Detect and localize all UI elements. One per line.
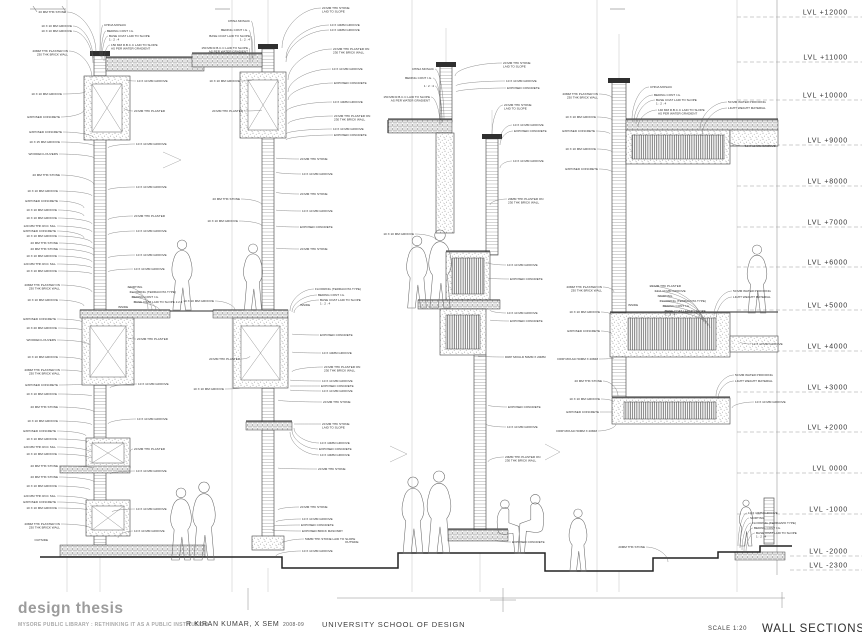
annotation-label: 10 X 10 MM GROOVE <box>322 379 353 383</box>
leader-line <box>276 210 301 211</box>
leader-line <box>58 256 92 262</box>
project-subtitle: MYSORE PUBLIC LIBRARY : RETHINKING IT AS… <box>18 622 208 628</box>
annotation-label: WOODEN LOUVERS <box>27 338 56 342</box>
annotation-label: 120 MM THK RCC SILL <box>24 224 57 228</box>
level-label: LVL -1000 <box>809 507 848 514</box>
annotation-label: EXPOSED CONCRETE <box>23 317 56 321</box>
wall-section-2 <box>192 44 292 550</box>
wall-section-4 <box>608 78 785 560</box>
leader-line <box>59 154 94 158</box>
annotation-label: 20MM THK PLASTER ON230 THK BRICK WALL <box>567 285 603 292</box>
institution-name: UNIVERSITY SCHOOL OF DESIGN <box>322 620 465 629</box>
annotation-label: 10 X 10 MM GROOVE <box>137 417 168 421</box>
leader-line <box>288 49 332 80</box>
annotation-label: 10 X 10 MM GROOVE <box>26 392 57 396</box>
annotation-label: EXPOSED CONCRETE <box>510 319 543 323</box>
annotation-label: EXPOSED CONCRETE <box>510 277 543 281</box>
annotation-label: 10 X 10 MM GROOVE <box>26 234 57 238</box>
annotation-label: 10 X 10 MM GROOVE <box>26 208 57 212</box>
leader-line <box>59 384 82 385</box>
annotation-label: 20 MM THK STONE <box>31 241 58 245</box>
annotation-label: 10 X 10 MM GROOVE <box>136 142 167 146</box>
annotation-label: 50 MM WATER PROOFING <box>735 373 774 377</box>
level-label: LVL +12000 <box>803 10 848 17</box>
annotation-label: EXPOSED CONCRETE <box>334 81 367 85</box>
leader-line <box>488 457 504 462</box>
annotation-label: 10 X 10 MM GROOVE <box>565 115 596 119</box>
annotation-label: OUTSIDE <box>34 538 48 542</box>
annotation-label: BEDING CONT I.G. <box>654 93 681 97</box>
annotation-label: 20 MM THK STONE <box>213 197 240 201</box>
level-label: LVL +8000 <box>808 179 848 186</box>
annotation-label: LIGHT WEIGHT MATERIAL <box>733 295 771 299</box>
leader-line <box>292 430 318 449</box>
leader-line <box>290 432 319 455</box>
annotation-label: 20 MM THK STONELAID TO SLOPE <box>322 6 349 13</box>
annotation-label: DRIP MOULD 50MM X 20MM <box>556 429 597 433</box>
human-figure-standing <box>747 255 766 313</box>
leader-line <box>288 116 333 124</box>
leader-line <box>57 319 82 322</box>
leader-line <box>288 69 331 92</box>
annotation-label: 10 X 10 MM GROOVE <box>27 189 58 193</box>
annotation-label: 50 MM WATER PROOFING <box>733 289 772 293</box>
annotation-label: 150 MM R.B.C.C LAID TO SLOPEAS PER WATER… <box>111 43 158 50</box>
annotation-label: LIGHT WEIGHT MATERIAL <box>728 106 766 110</box>
leader-line <box>274 525 300 526</box>
annotation-label: 10 X 10 MM GROOVE <box>513 159 544 163</box>
annotation-label: 10 X 10 MM GROOVE <box>136 507 167 511</box>
annotation-label: 10 X 10MM GROOVE <box>333 100 363 104</box>
annotation-label: BASE COAT LAID TO SLOPE1 : 2 : 4 <box>320 298 361 305</box>
leader-line <box>292 367 323 372</box>
annotation-label: 20MM THK PLASTER ON230 THK BRICK WALL <box>33 49 69 56</box>
leader-line <box>488 405 507 407</box>
human-figure-head <box>176 488 186 498</box>
annotation-label: 10 X 10 MM GROOVE <box>136 253 167 257</box>
annotation-label: EXPOSED CONCRETE <box>25 199 58 203</box>
leader-line <box>58 271 92 274</box>
leader-line <box>599 169 612 172</box>
annotation-label: 20 MM THK PLASTER <box>209 357 241 361</box>
leader-line <box>58 218 92 224</box>
annotation-label: 10 X 10 MM GROOVE <box>31 92 62 96</box>
annotation-label: 120 MM THK RCC SILL <box>24 445 57 449</box>
annotation-label: 10 X 10 MM GROOVE <box>26 254 57 258</box>
leader-line <box>278 400 322 402</box>
leader-line <box>57 502 86 505</box>
leader-line <box>276 226 299 227</box>
annotation-label: DRIP MOULD 50MM X 20MM <box>557 357 598 361</box>
level-label: LVL 0000 <box>812 466 848 473</box>
leader-line <box>290 390 321 391</box>
leader-line <box>59 300 84 306</box>
annotation-label: 50 MM WATER PROOFING <box>728 100 767 104</box>
annotation-label: 10 X 10 MM GROOVE <box>332 67 363 71</box>
annotation-label: 120 MM THK RCC SILL <box>24 494 57 498</box>
annotation-label: 10 X 10 MM GROOVE <box>26 452 57 456</box>
leader-line <box>597 149 612 152</box>
annotation-label: SKIRTING <box>750 516 765 520</box>
annotation-label: 20 MM THK STONE <box>300 505 327 509</box>
leader-line <box>282 8 321 48</box>
annotation-label: 10 X 10 MM GROOVE <box>569 397 600 401</box>
annotation-label: 20MM THK PLASTER ON230 THK BRICK WALL <box>25 368 61 375</box>
annotation-label: 20 MM THK PLASTER <box>134 447 166 451</box>
annotation-label: 10 X 10 MM GROOVE <box>302 209 333 213</box>
leader-line <box>61 370 82 372</box>
annotation-label: 10 X 10 MM GROOVE <box>322 389 353 393</box>
annotation-label: 10 X 10MM GROOVE <box>330 28 360 32</box>
annotation-label: INSIDE <box>300 303 310 307</box>
annotation-label: 10 X 10 MM GROOVE <box>26 269 57 273</box>
annotation-label: 20 MM THK PLASTER ON230 THK BRICK WALL <box>334 114 370 121</box>
leader-line <box>599 94 612 98</box>
annotation-label: BEDING CONT I.G. <box>107 29 134 33</box>
level-label: LVL +5000 <box>808 303 848 310</box>
academic-year: 2008-09 <box>283 622 304 628</box>
leader-line <box>58 508 88 510</box>
leader-line <box>455 63 502 76</box>
leader-line <box>276 551 301 556</box>
annotation-label: 10 X 10 MM GROOVE <box>752 342 783 346</box>
annotation-label: BASE COAT LAID TO SLOPE1 : 2 : 4 <box>656 98 697 105</box>
annotation-label: EXPOSED CONCRETE <box>321 384 354 388</box>
annotation-label: 10 X 10 MM GROOVE <box>745 144 776 148</box>
leader-line <box>598 424 616 431</box>
level-label: LVL -2000 <box>809 549 848 556</box>
leader-line <box>276 248 299 249</box>
leader-line <box>276 172 301 174</box>
leader-line <box>58 486 90 490</box>
annotation-label: EXPOSED CONCRETE <box>334 133 367 137</box>
leader-line <box>59 407 94 412</box>
annotation-label: 20 MM THK PLASTER ON230 THK BRICK WALL <box>324 365 360 372</box>
leader-line <box>61 524 90 528</box>
annotation-label: 20 MM THK STONELAID TO SLOPE <box>504 103 531 110</box>
leader-line <box>718 381 734 399</box>
annotation-label: 10 X 10 MM GROOVE <box>134 529 165 533</box>
annotation-label: 10 X 10 MM GROOVE <box>27 298 58 302</box>
leader-line <box>59 477 94 482</box>
leader-line <box>241 199 262 205</box>
annotation-label: 20 MM THK STONE <box>300 192 327 196</box>
annotation-label: 10 X 10 MM GROOVE <box>183 299 214 303</box>
scale-note: SCALE 1:20 <box>708 626 747 632</box>
annotation-label: 10 X 10 MM GROOVE <box>506 79 537 83</box>
annotation-label: 120 MM THK RCC SILL <box>24 262 57 266</box>
leader-line <box>58 394 92 396</box>
annotation-label: 10 X 10 MM GROOVE <box>207 219 238 223</box>
leader-line <box>59 191 92 196</box>
leader-line <box>108 216 133 220</box>
leader-line <box>61 110 84 117</box>
annotation-label: 20 MM THK PLASTER <box>212 109 244 113</box>
annotation-label: 20 MM THK STONE <box>318 467 345 471</box>
level-label: LVL +9000 <box>808 138 848 145</box>
annotation-label: BEDING CONT I.G. <box>132 295 159 299</box>
human-figure-head <box>433 471 444 482</box>
leader-line <box>597 117 612 120</box>
leader-line <box>59 421 92 425</box>
annotation-label: 20 MM THK STONE <box>33 173 60 177</box>
annotation-label: EXPOSED CONCRETE <box>27 115 60 119</box>
leader-line <box>488 278 509 279</box>
annotation-label: 20 MM THK STONE <box>39 10 66 14</box>
level-label: LVL +6000 <box>808 260 848 267</box>
annotation-label: 10 X 10 MM GROOVE <box>302 549 333 553</box>
leader-line <box>278 507 299 510</box>
leader-line <box>61 142 94 146</box>
human-figure-head <box>408 477 418 487</box>
level-label: LVL +11000 <box>803 55 848 62</box>
leader-line <box>490 310 506 313</box>
leader-line <box>59 249 94 256</box>
annotation-label: 10 X 10 MM GROOVE <box>655 289 686 293</box>
annotation-label: 10 X 10 MM GROOVE <box>755 400 786 404</box>
leader-line <box>57 231 84 238</box>
annotation-label: 20 MM THK STONE <box>31 247 58 251</box>
leader-line <box>61 175 94 185</box>
annotation-label: 20 MM THK STONE <box>300 247 327 251</box>
human-figure-standing <box>407 247 428 308</box>
annotation-label: 20 MM THK STONE <box>31 464 58 468</box>
leader-line <box>456 88 506 92</box>
leader-line <box>486 424 506 427</box>
leader-line <box>276 519 301 522</box>
leader-line <box>596 131 610 134</box>
annotation-label: BASE COAT LAID TO SLOPE1 : 2 : 4 <box>756 531 797 538</box>
annotation-label: 10 X 10 MM GROOVE <box>137 79 168 83</box>
annotation-label: 10 X 10MM GROOVE <box>330 23 360 27</box>
leader-line <box>59 357 82 360</box>
annotation-label: 10 X 10 MM GROOVE <box>302 517 333 521</box>
leader-line <box>286 30 329 62</box>
leader-line <box>130 449 133 452</box>
leader-line <box>286 135 333 140</box>
leader-line <box>490 320 509 321</box>
annotation-label: BASE COAT LAID TO SLOPE1 : 2 : 4 <box>209 34 250 41</box>
annotation-label: BASE COAT LAID TO SLOPE1 : 2 : 4 <box>109 34 150 41</box>
annotation-label: FLOORING (TERRAZZO TYPE) <box>752 521 796 525</box>
wall-section-1 <box>60 51 213 557</box>
annotation-label: WOODEN LOUVERS <box>29 152 58 156</box>
annotation-label: 20MM THK PLASTER ON230 THK BRICK WALL <box>563 92 599 99</box>
annotation-label: 20 MM THK STONE <box>31 475 58 479</box>
leader-line <box>276 158 299 159</box>
annotation-label: 10 X 10MM GROOVE <box>320 441 350 445</box>
leader-line <box>500 131 513 145</box>
annotation-label: OUTSIDE <box>345 540 359 544</box>
annotation-label: 10 X 10 MM GROOVE <box>333 127 364 131</box>
leader-line <box>63 92 85 94</box>
annotation-label: CHINA MOSAIC <box>650 85 673 89</box>
annotation-label: 10 X 10 MM GROOVE <box>41 29 72 33</box>
annotation-label: 10 X 10 MM GROOVE <box>383 232 414 236</box>
annotation-label: CHINA MOSAIC <box>104 23 127 27</box>
leader-line <box>73 31 93 63</box>
annotation-label: BASE COAT LAID TO SLOPE 1:2:4 <box>134 300 183 304</box>
leader-line <box>69 51 92 78</box>
human-figure-standing <box>402 488 424 553</box>
leader-line <box>292 352 321 353</box>
annotation-label: EXPOSED CONCRETE <box>29 130 62 134</box>
drawing-sheet: LVL +12000LVL +11000LVL +10000LVL +9000L… <box>0 0 862 637</box>
leader-line <box>57 496 88 500</box>
annotation-label: 10 X 10 MM GROOVE <box>302 172 333 176</box>
human-figure-head <box>743 500 749 506</box>
human-figure-head <box>574 509 582 517</box>
leader-line <box>58 439 88 442</box>
leader-line <box>108 187 135 190</box>
annotation-label: 10 X 20 MM GROOVE <box>26 326 57 330</box>
level-label: LVL +4000 <box>808 344 848 351</box>
annotation-label: 140 MM R.B.C.C LAID TO SLOPEAS PER WATER… <box>658 108 705 115</box>
human-figure-standing <box>244 254 263 310</box>
annotation-label: 10 X 10MM GROOVE <box>322 351 352 355</box>
annotation-label: 10 X 10 MM GROOVE <box>193 387 224 391</box>
annotation-label: EXPOSED CONCRETE <box>23 500 56 504</box>
leader-line <box>732 402 754 408</box>
annotation-label: 10 X 10 MM GROOVE <box>513 123 544 127</box>
leader-line <box>456 81 505 86</box>
leader-line <box>492 105 503 134</box>
annotation-label: EXPOSED CONCRETE <box>562 129 595 133</box>
annotation-label: 10 X 15 MM GROOVE <box>29 140 60 144</box>
annotation-label: INSIDE <box>628 303 638 307</box>
annotation-label: 10 X 10 MM GROOVE <box>26 216 57 220</box>
annotation-label: 10 X 10 MM GROOVE <box>507 311 538 315</box>
leader-line <box>278 468 317 469</box>
annotations: 20 MM THK STONE10 X 10 MM GROOVE10 X 10 … <box>23 6 796 562</box>
annotation-label: CHINA MOSAIC <box>228 19 251 23</box>
annotation-label: 20 MM THK PLASTER <box>137 337 169 341</box>
annotation-label: 20MM THK PLASTER ON230 THK BRICK WALL <box>25 283 61 290</box>
leader-line <box>286 102 332 112</box>
annotation-label: BEDING CONT I.G. <box>405 76 432 80</box>
leader-line <box>61 285 92 292</box>
annotation-label: 20 MM THK PLASTER ON230 THK BRICK WALL <box>333 47 369 54</box>
annotation-label: 10 X 10 MM GROOVE <box>27 355 58 359</box>
annotation-label: DRIP MOULD 50MM X 20MM <box>505 355 546 359</box>
annotation-label: 20MM THK PLASTER ON230 THK BRICK WALL <box>505 455 541 462</box>
leader-line <box>415 234 436 240</box>
annotation-label: FLOORING (TERRACOTA TYPE) <box>660 299 706 303</box>
level-label: LVL +3000 <box>808 385 848 392</box>
annotation-label: EXPOSED CONCRETE <box>514 129 547 133</box>
annotation-label: FLOORING (TERRACOTA TYPE) <box>315 287 361 291</box>
annotation-label: 20 MM THK PLASTER <box>650 284 682 288</box>
title-block: design thesis MYSORE PUBLIC LIBRARY : RE… <box>18 588 862 635</box>
annotation-label: 20 MM THK STONE <box>323 400 350 404</box>
leader-line <box>108 419 136 424</box>
annotation-label: 150 MM R.B.C.C LAID TO SLOPEAS PER WATER… <box>383 95 430 102</box>
annotation-label: 20MM THK STONE <box>618 545 645 549</box>
annotation-label: 10 X 10 MM GROOVE <box>136 229 167 233</box>
annotation-label: 10 X 10 MM GROOVE <box>569 310 600 314</box>
leader-line <box>108 231 135 235</box>
annotation-label: 10 X 10 MM GROOVE <box>41 24 72 28</box>
annotation-label: EXPOSED CONCRETE <box>566 410 599 414</box>
annotation-label: EXPOSED CONCRETE <box>23 229 56 233</box>
annotation-label: 10 X 10 MM GROOVE <box>27 419 58 423</box>
annotation-label: EXPOSED CONCRETE <box>512 540 545 544</box>
leader-line <box>108 269 133 272</box>
annotation-label: 20MM THK PLASTER ON230 THK BRICK WALL <box>508 197 544 204</box>
leader-line <box>57 264 92 268</box>
human-figure-head <box>177 240 187 250</box>
author-name: R KIRAN KUMAR, X SEM <box>186 621 279 628</box>
annotation-label: 20 MM THK STONE <box>575 379 602 383</box>
leader-line <box>632 87 649 120</box>
leader-line <box>500 161 512 168</box>
annotation-label: 10 X 10 MM GROOVE <box>136 469 167 473</box>
annotation-label: BEDING CONT I.G. <box>221 28 248 32</box>
leader-line <box>276 192 299 194</box>
annotation-label: EXPOSED CONCRETE <box>565 167 598 171</box>
annotation-label: 150 MM R.B.C.C LAID TO SLOPEAS PER WATER… <box>201 46 248 53</box>
annotation-label: LIGHT WEIGHT MATERIAL <box>735 379 773 383</box>
annotation-label: EXPOSED BRICK MASONRY <box>302 529 343 533</box>
annotation-label: EXPOSED CONCRETE <box>567 329 600 333</box>
annotation-label: 20 MM THK STONELAID TO SLOPE <box>503 61 530 68</box>
annotation-label: 20 MM THK PLASTER <box>134 109 166 113</box>
human-figure-seated <box>518 503 544 553</box>
annotation-label: 10 X 10 MM GROOVE <box>209 79 240 83</box>
annotation-label: EXPOSED CONCRETE <box>300 225 333 229</box>
leader-line <box>108 255 135 258</box>
annotation-label: EXPOSED CONCRETE <box>320 333 353 337</box>
annotation-label: 10 X 10 MM GROOVE <box>138 382 169 386</box>
leader-line <box>272 530 301 531</box>
annotation-label: 20MM THK PLASTER ON230 THK BRICK WALL <box>25 522 61 529</box>
human-figure-standing <box>569 518 587 571</box>
leader-line <box>58 328 82 330</box>
level-label: LVL +7000 <box>808 220 848 227</box>
leader-line <box>716 375 734 396</box>
leader-line <box>58 454 90 458</box>
human-figure-head <box>752 245 761 254</box>
annotation-label: EXPOSED CONCRETE <box>301 523 334 527</box>
leader-line <box>58 236 92 243</box>
human-figure-head <box>412 236 422 246</box>
annotation-label: 10 X 10MM GROOVE <box>320 453 350 457</box>
annotation-label: CHINA MOSAIC <box>412 67 435 71</box>
leader-line <box>290 289 314 311</box>
leader-line <box>59 201 84 208</box>
leader-line <box>292 334 319 335</box>
annotation-label: BEDING CONT I.G. <box>318 293 345 297</box>
annotation-label: INSIDE <box>118 305 128 309</box>
annotation-label: BEDING CONT I.G. <box>754 526 781 530</box>
annotation-label: 20 MM THK STONE <box>300 157 327 161</box>
wall-sections-drawing: LVL +12000LVL +11000LVL +10000LVL +9000L… <box>0 0 862 637</box>
leader-line <box>58 210 84 216</box>
leader-line <box>286 129 332 134</box>
annotation-label: EXPOSED CONCRETE <box>507 86 540 90</box>
annotation-label: 20 MM THK PLASTER <box>134 214 166 218</box>
annotation-label: 10 X 10 MM GROOVE <box>565 147 596 151</box>
annotation-label: SKIRTING <box>128 285 143 289</box>
level-label: LVL +10000 <box>803 93 848 100</box>
level-label: LVL +2000 <box>808 425 848 432</box>
human-figure-head <box>249 244 258 253</box>
leader-line <box>290 380 321 381</box>
project-title: design thesis <box>18 600 124 617</box>
leader-line <box>239 221 262 226</box>
annotation-label: 10 X 10MM GROOVE <box>748 511 778 515</box>
annotation-label: 10 X 10 MM GROOVE <box>507 425 538 429</box>
